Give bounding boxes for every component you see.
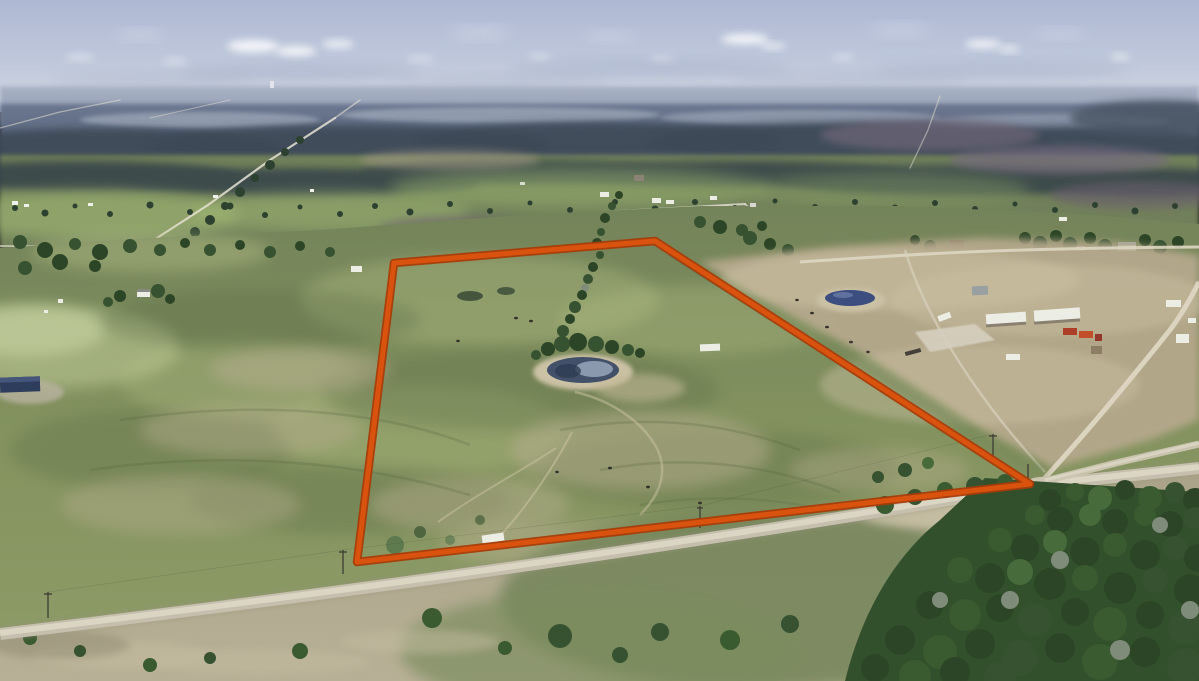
barn-west xyxy=(351,266,362,272)
white-trailer-east-1 xyxy=(1166,300,1181,307)
white-trailer-east-2 xyxy=(1176,334,1189,343)
red-container-2 xyxy=(1079,331,1093,338)
red-container-1 xyxy=(1063,328,1077,335)
pond-reflection xyxy=(575,361,613,377)
white-trailer-parcel xyxy=(700,344,720,352)
tan-shed xyxy=(1091,346,1102,354)
white-trailer-south xyxy=(1006,354,1020,360)
red-container-3 xyxy=(1095,334,1102,341)
small-shed xyxy=(58,299,63,303)
farm-pond xyxy=(825,290,875,306)
rv-trailer xyxy=(1059,217,1067,221)
aerial-photo xyxy=(0,0,1199,681)
aerial-photo-canvas xyxy=(0,0,1199,681)
small-shed xyxy=(44,310,48,313)
farmhouse-west-roof xyxy=(137,289,150,292)
gray-shed xyxy=(972,286,988,296)
